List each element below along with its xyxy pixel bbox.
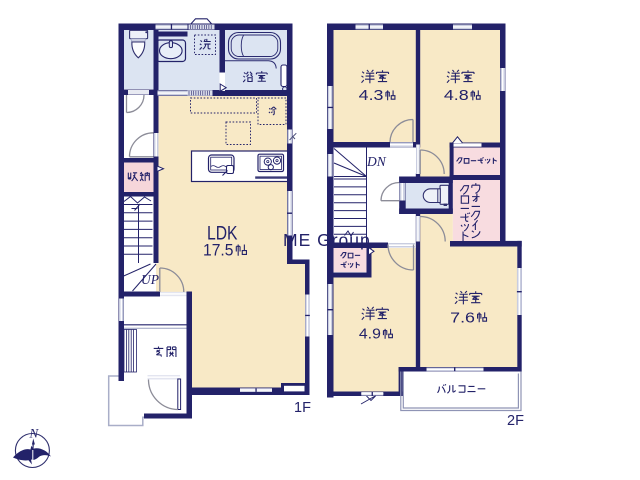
svg-text:4.3: 4.3 <box>359 88 384 104</box>
svg-text:4.8: 4.8 <box>444 88 469 104</box>
svg-text:N: N <box>29 426 40 441</box>
svg-text:ME Group: ME Group <box>283 230 371 250</box>
svg-text:2F: 2F <box>507 413 524 429</box>
svg-text:4.9: 4.9 <box>359 327 381 343</box>
svg-text:17.5: 17.5 <box>203 241 234 260</box>
svg-text:UP: UP <box>141 272 159 287</box>
svg-text:1F: 1F <box>294 400 311 416</box>
svg-text:DN: DN <box>366 154 387 169</box>
svg-text:7.6: 7.6 <box>450 310 475 326</box>
